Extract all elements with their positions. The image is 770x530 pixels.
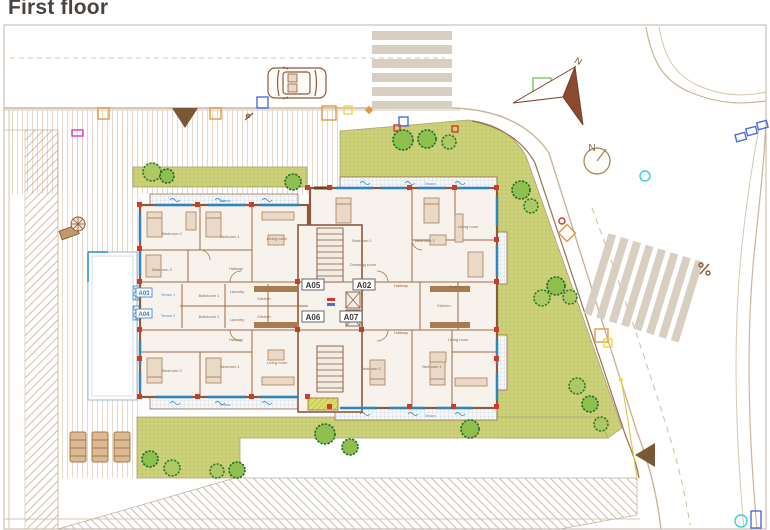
elevator-icon <box>346 292 360 308</box>
north-label: N <box>588 143 595 154</box>
tree-icon <box>342 439 358 455</box>
tree-icon <box>442 135 456 149</box>
terrace-label: Terrace <box>424 414 435 418</box>
tree-icon <box>461 420 479 438</box>
tree-icon <box>594 417 608 431</box>
site-plan-page: First floor <box>0 0 770 530</box>
room-label: Bedroom 3 <box>152 267 172 272</box>
tree-icon <box>315 424 335 444</box>
sun-lounger <box>92 432 108 462</box>
room-label: Kitchen <box>257 314 270 319</box>
level-mark-blue <box>327 303 335 306</box>
tree-icon <box>160 169 174 183</box>
room-label: Laundry <box>230 317 244 322</box>
site-plan-drawing: N N <box>0 0 770 530</box>
tree-icon <box>393 130 413 150</box>
room-label: Living room <box>458 224 479 229</box>
tree-icon <box>229 462 245 478</box>
room-label: Bedroom 2 <box>162 231 182 236</box>
tree-icon <box>164 460 180 476</box>
sun-lounger <box>114 432 130 462</box>
car-icon <box>268 67 326 99</box>
room-label: Bathroom 1 <box>199 293 220 298</box>
apartment-label: A06 <box>306 313 321 322</box>
building: A05 A02 A06 A07 A03 A04 Bedroom 2 Bedroo… <box>133 177 507 420</box>
tree-icon <box>547 277 565 295</box>
room-label: Bedroom 3 <box>449 284 469 289</box>
room-label: Bedroom 1 <box>220 234 240 239</box>
room-label: Living room <box>267 360 288 365</box>
tree-icon <box>582 396 598 412</box>
room-label: Hallway <box>394 330 408 335</box>
room-label: Laundry <box>230 289 244 294</box>
tree-icon <box>143 163 161 181</box>
tree-icon <box>512 181 530 199</box>
room-label: Bedroom 2 <box>415 238 435 243</box>
room-label: Hallway <box>229 337 243 342</box>
terrace-label: Terrace <box>219 199 230 203</box>
tree-icon <box>563 290 577 304</box>
terrace-label: Terrace <box>424 182 435 186</box>
apartment-label: A03 <box>138 291 150 297</box>
room-label: Living room <box>448 337 469 342</box>
terrace-label: Terrace 2 <box>161 314 175 318</box>
room-label: Kitchen <box>257 296 270 301</box>
terrace-label: Terrace 1 <box>161 293 175 297</box>
room-label: Living room <box>267 236 288 241</box>
tree-icon <box>285 174 301 190</box>
room-label: Dressing room <box>350 262 377 267</box>
level-mark-red <box>327 298 335 301</box>
room-label: Bedroom 1 <box>422 364 442 369</box>
room-label: Bathroom 2 <box>199 314 220 319</box>
room-label: Bedroom 2 <box>361 366 381 371</box>
tree-icon <box>524 199 538 213</box>
terrace-label: Terrace <box>219 403 230 407</box>
swimming-pool <box>88 252 137 400</box>
tree-icon <box>142 451 158 467</box>
room-label: Bedroom 1 <box>220 364 240 369</box>
tree-icon <box>210 464 224 478</box>
apartment-label: A02 <box>357 281 372 290</box>
room-label: Hallway <box>229 266 243 271</box>
entrance-canopy <box>308 398 338 410</box>
room-label: Kitchen <box>437 303 450 308</box>
tree-icon <box>534 290 550 306</box>
room-label: Hallway <box>394 283 408 288</box>
tree-icon <box>418 130 436 148</box>
sun-lounger <box>70 432 86 462</box>
tree-icon <box>569 378 585 394</box>
apartment-label: A05 <box>306 281 321 290</box>
room-label: Bedroom 1 <box>352 238 372 243</box>
apartment-label: A04 <box>138 312 150 318</box>
sun-loungers <box>70 432 130 462</box>
room-label: Bedroom 2 <box>162 368 182 373</box>
apartment-label: A07 <box>344 313 359 322</box>
